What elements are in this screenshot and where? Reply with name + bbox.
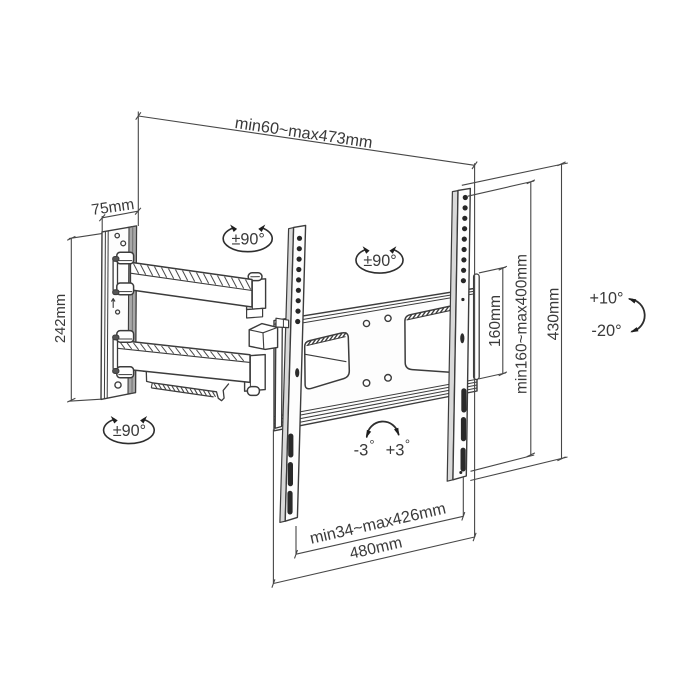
svg-text:±90°: ±90°: [113, 422, 146, 440]
svg-text:430mm: 430mm: [546, 288, 563, 341]
svg-text:±90°: ±90°: [232, 231, 265, 249]
svg-text:±90°: ±90°: [363, 252, 396, 270]
svg-text:°: °: [369, 437, 374, 452]
svg-text:-3: -3: [354, 442, 369, 460]
svg-text:242mm: 242mm: [53, 294, 69, 343]
svg-text:min160~max400mm: min160~max400mm: [514, 254, 531, 394]
svg-text:160mm: 160mm: [487, 295, 504, 347]
svg-text:-20°: -20°: [591, 322, 621, 340]
svg-text:°: °: [405, 437, 410, 452]
svg-text:+10°: +10°: [590, 290, 624, 308]
svg-text:+3: +3: [386, 442, 405, 460]
